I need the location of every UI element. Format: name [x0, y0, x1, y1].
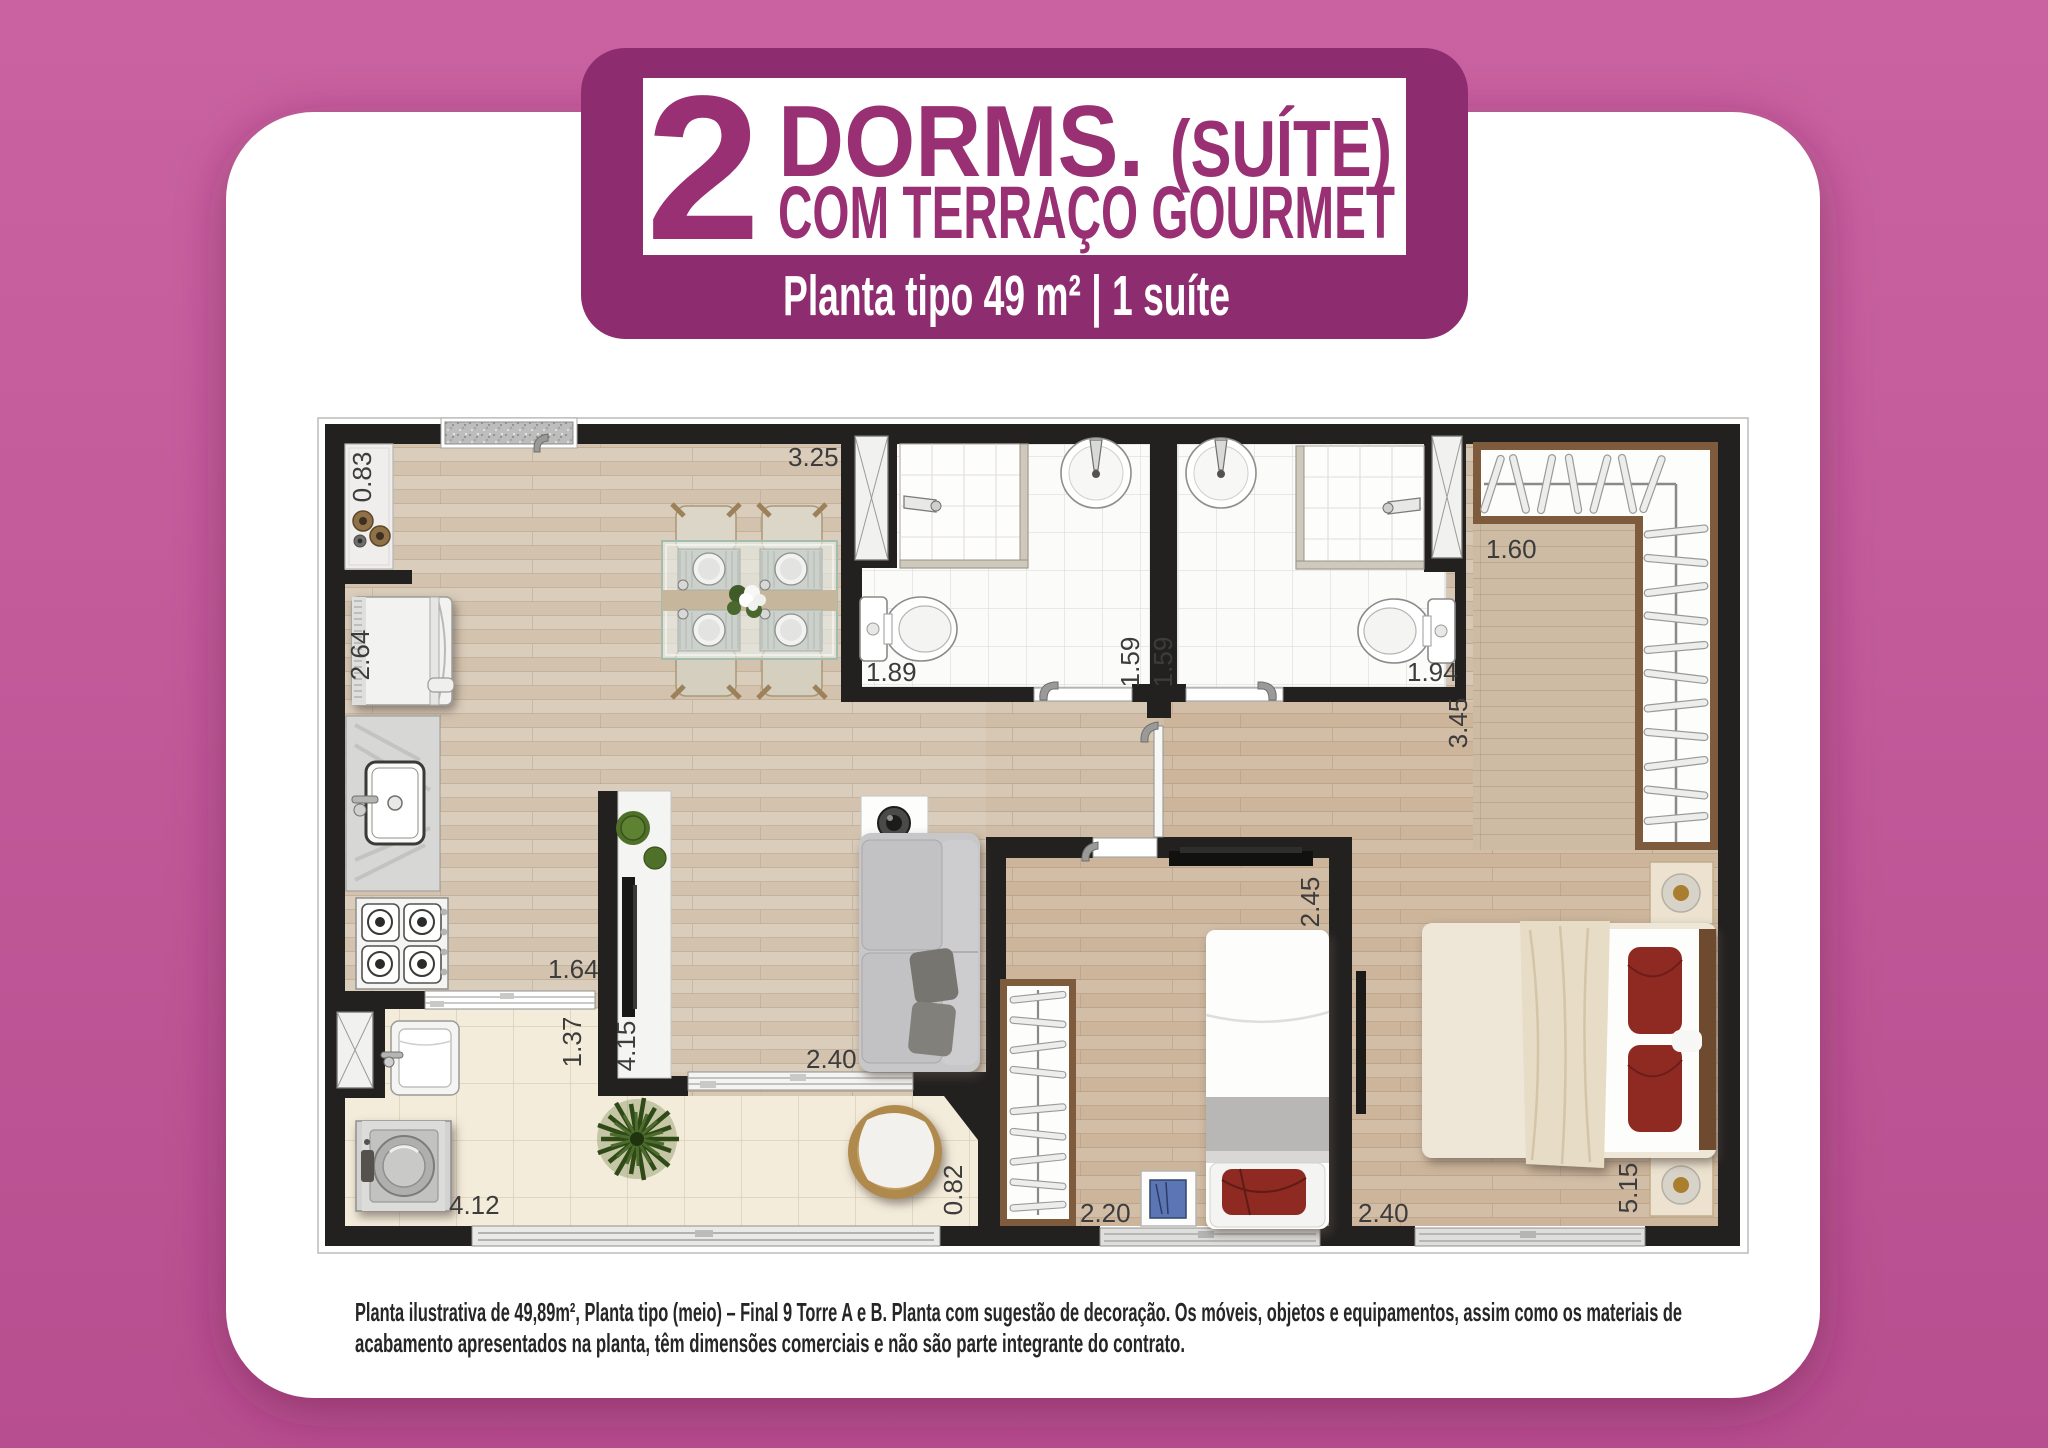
- svg-text:1.89: 1.89: [866, 657, 917, 687]
- svg-text:2.45: 2.45: [1295, 877, 1325, 928]
- svg-text:2.40: 2.40: [806, 1044, 857, 1074]
- svg-text:5.15: 5.15: [1613, 1163, 1643, 1214]
- svg-text:COM TERRAÇO GOURMET: COM TERRAÇO GOURMET: [778, 171, 1395, 254]
- svg-text:2.64: 2.64: [345, 630, 375, 681]
- svg-text:2: 2: [646, 53, 761, 283]
- svg-text:2.40: 2.40: [1358, 1198, 1409, 1228]
- svg-text:2.20: 2.20: [1080, 1198, 1131, 1228]
- svg-text:0.82: 0.82: [938, 1165, 968, 1216]
- svg-text:Planta tipo 49 m² | 1 suíte: Planta tipo 49 m² | 1 suíte: [783, 264, 1230, 328]
- svg-text:4.15: 4.15: [611, 1021, 641, 1072]
- svg-text:acabamento apresentados na pla: acabamento apresentados na planta, têm d…: [355, 1328, 1185, 1358]
- svg-text:3.45: 3.45: [1443, 698, 1473, 749]
- svg-text:3.25: 3.25: [788, 442, 839, 472]
- svg-text:0.83: 0.83: [347, 452, 377, 503]
- svg-text:1.60: 1.60: [1486, 534, 1537, 564]
- svg-text:1.59: 1.59: [1115, 637, 1145, 688]
- svg-text:4.12: 4.12: [449, 1190, 500, 1220]
- svg-text:1.59: 1.59: [1148, 637, 1178, 688]
- svg-text:1.94: 1.94: [1407, 657, 1458, 687]
- svg-text:Planta ilustrativa de 49,89m²,: Planta ilustrativa de 49,89m², Planta ti…: [355, 1297, 1682, 1327]
- svg-text:1.37: 1.37: [557, 1017, 587, 1068]
- svg-text:1.64: 1.64: [548, 954, 599, 984]
